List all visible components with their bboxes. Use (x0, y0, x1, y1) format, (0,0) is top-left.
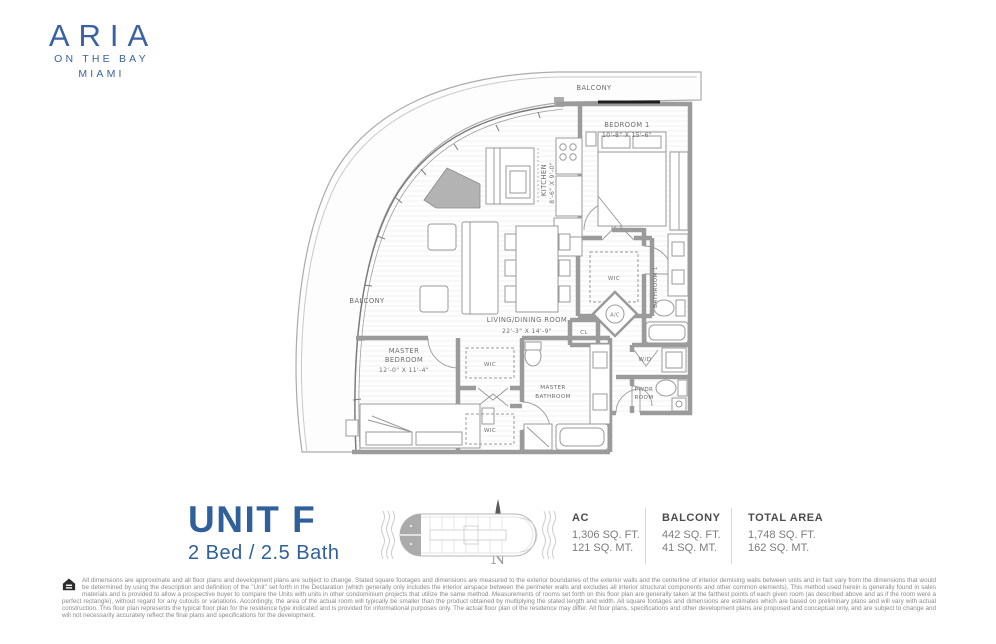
label-ac: A/C (610, 313, 620, 319)
stat-total-sqft: 1,748 SQ. FT. (748, 529, 823, 543)
label-cl: CL (580, 330, 588, 336)
label-bathroom1: BATHROOM 1 (653, 266, 659, 308)
unit-config: 2 Bed / 2.5 Bath (188, 542, 339, 565)
label-balcony-top: BALCONY (576, 84, 612, 92)
brand-city: MIAMI (45, 68, 158, 80)
brand-wordmark: ARIA (48, 20, 158, 52)
stat-balcony-sqft: 442 SQ. FT. (662, 529, 721, 543)
label-master-bath-1: MASTER (540, 385, 565, 391)
label-wic-master-2: WIC (484, 428, 496, 434)
label-pwdr-2: ROOM (634, 395, 653, 401)
label-living-dims: 22'-3" X 14'-9" (502, 328, 552, 335)
stat-ac-label: AC (572, 512, 640, 526)
stat-balcony-sqmt: 41 SQ. MT. (662, 542, 721, 556)
legal-disclaimer: All dimensions are approximate and all f… (62, 577, 936, 619)
stat-balcony: BALCONY 442 SQ. FT. 41 SQ. MT. (662, 512, 721, 556)
brochure-page: ARIA ON THE BAY MIAMI (0, 0, 996, 644)
stat-total-label: TOTAL AREA (748, 512, 823, 526)
stats-divider-2 (731, 508, 732, 564)
disclaimer-text: All dimensions are approximate and all f… (62, 577, 936, 619)
label-living: LIVING/DINING ROOM (487, 316, 567, 324)
aria-logo: ARIA ON THE BAY MIAMI (42, 20, 158, 80)
building-keyplan (378, 506, 562, 564)
label-pwdr-1: PWDR (635, 387, 654, 393)
label-wic-master-1: WIC (484, 362, 496, 368)
label-master-bath-2: BATHROOM (535, 394, 571, 400)
stat-total: TOTAL AREA 1,748 SQ. FT. 162 SQ. MT. (748, 512, 823, 556)
stat-ac: AC 1,306 SQ. FT. 121 SQ. MT. (572, 512, 640, 556)
label-master-bedroom-2: BEDROOM (385, 356, 423, 364)
unit-name: UNIT F (188, 500, 339, 540)
floorplan-drawing: BALCONY BALCONY BEDROOM 1 10'-8" X 15'-6… (278, 60, 710, 464)
stat-balcony-label: BALCONY (662, 512, 721, 526)
stat-ac-sqft: 1,306 SQ. FT. (572, 529, 640, 543)
label-balcony-left: BALCONY (349, 297, 385, 305)
label-wic-bedroom1: WIC (608, 276, 620, 282)
label-kitchen-dims: 8'-6" X 9'-0" (549, 162, 556, 204)
label-bedroom1-dims: 10'-8" X 15'-6" (602, 132, 652, 139)
unit-title-block: UNIT F 2 Bed / 2.5 Bath (188, 500, 339, 565)
stat-ac-sqmt: 121 SQ. MT. (572, 542, 640, 556)
equal-housing-icon (62, 578, 76, 592)
window-band (598, 101, 660, 104)
stats-divider-1 (645, 508, 646, 564)
label-master-bedroom-dims: 12'-0" X 11'-4" (379, 367, 429, 374)
brand-tagline: ON THE BAY (45, 53, 158, 65)
label-wd: W/D (639, 357, 652, 363)
label-bedroom1: BEDROOM 1 (604, 121, 650, 129)
label-kitchen: KITCHEN (540, 164, 548, 196)
stat-total-sqmt: 162 SQ. MT. (748, 542, 823, 556)
label-master-bedroom-1: MASTER (389, 347, 419, 355)
